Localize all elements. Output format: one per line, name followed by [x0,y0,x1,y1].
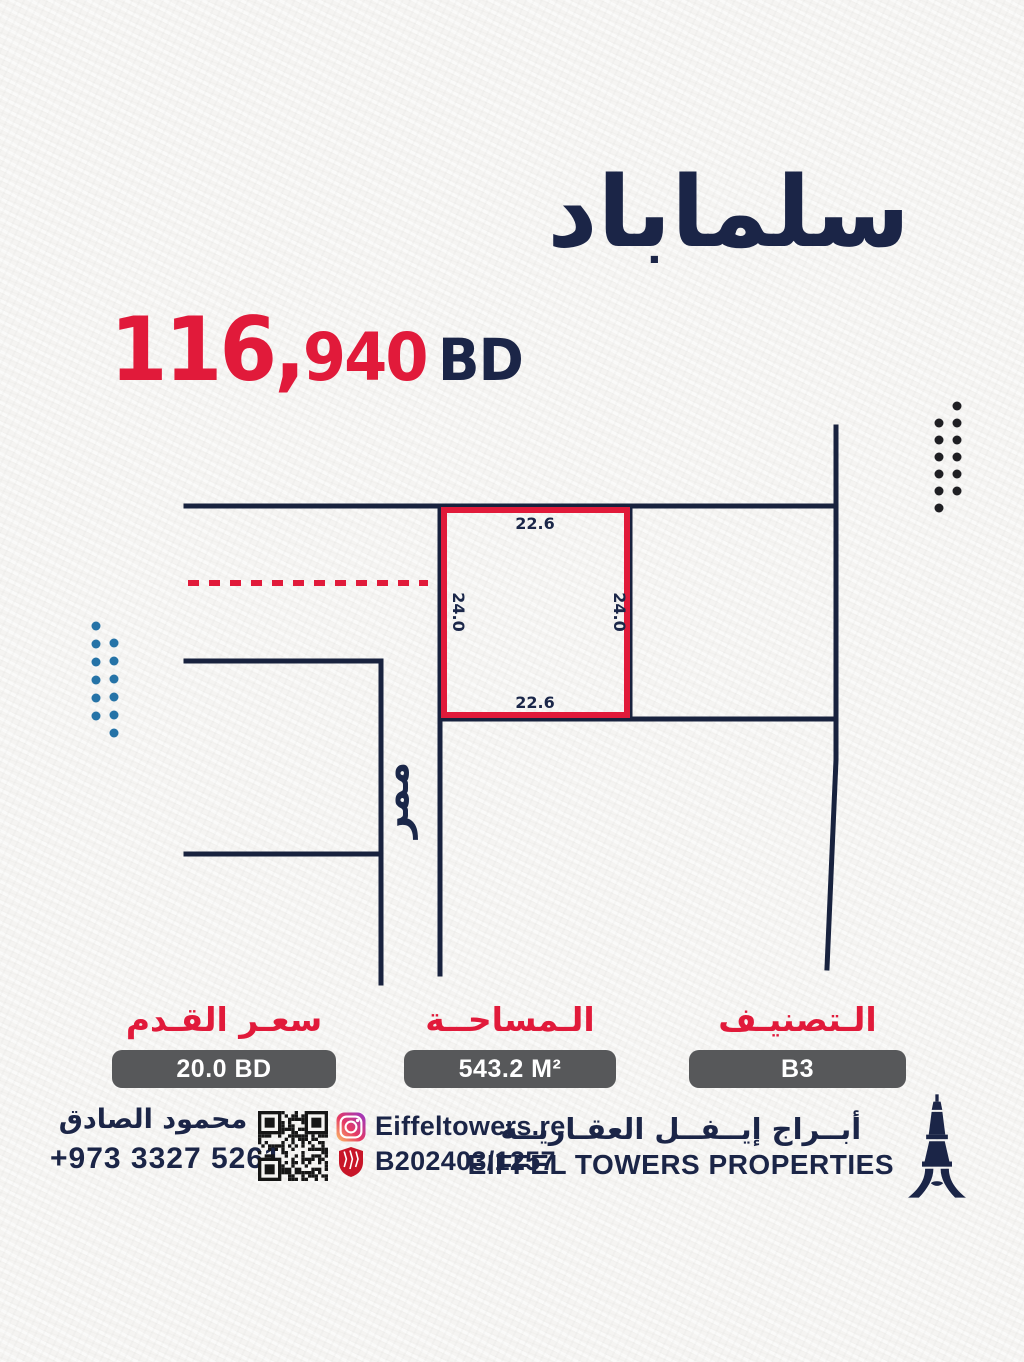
stat-area: الـمساحــة 543.2 M² [404,1000,616,1088]
dim-bottom: 22.6 [515,693,554,712]
eiffel-tower-logo [906,1094,968,1198]
highlighted-plot [444,510,627,715]
stat-classification-value: B3 [689,1050,906,1088]
stat-classification-label: الـتصنيـف [689,1000,906,1046]
dots-left [92,622,119,738]
company-names: أبــراج إيــفــل العقـاريــة EIFFEL TOWE… [468,1112,894,1181]
dim-top: 22.6 [515,514,554,533]
license-shield-icon [336,1147,366,1177]
dim-right: 24.0 [610,592,629,631]
street-label: ممر [372,762,418,840]
company-block: أبــراج إيــفــل العقـاريــة EIFFEL TOWE… [468,1094,968,1198]
stat-price-per-foot-value: 20.0 BD [112,1050,336,1088]
dots-top-right [935,402,962,513]
real-estate-poster: سلماباد 116, 940 BD 22.6 22.6 24.0 24.0 … [0,0,1024,1362]
dim-left: 24.0 [449,592,468,631]
qr-code [258,1111,328,1181]
stat-area-label: الـمساحــة [404,1000,616,1046]
instagram-icon [336,1112,366,1142]
stat-classification: الـتصنيـف B3 [689,1000,906,1088]
company-name-arabic: أبــراج إيــفــل العقـاريــة [468,1112,894,1146]
stat-price-per-foot: سعـر القـدم 20.0 BD [112,1000,336,1088]
company-name-english: EIFFEL TOWERS PROPERTIES [468,1149,894,1181]
stat-area-value: 543.2 M² [404,1050,616,1088]
agent-phone: +973 3327 5261 [50,1142,256,1176]
agent-name: محمود الصادق [50,1104,256,1135]
footer: محمود الصادق +973 3327 5261 [0,1102,1024,1212]
agent-block: محمود الصادق +973 3327 5261 [50,1104,256,1176]
stat-price-per-foot-label: سعـر القـدم [112,1000,336,1046]
